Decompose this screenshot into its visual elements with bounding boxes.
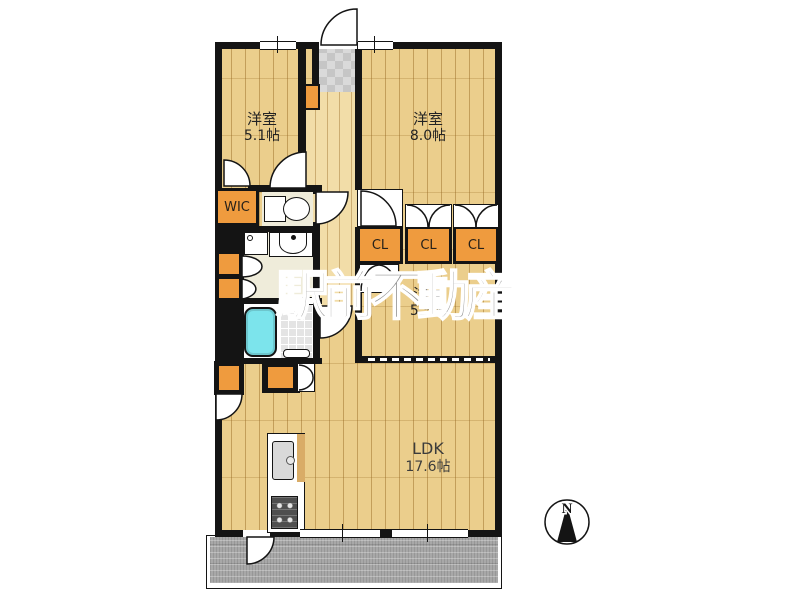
sliding-window-mullion xyxy=(380,529,392,538)
room-label-ldk: LDK 17.6帖 xyxy=(384,440,472,476)
kitchen-counter-edge xyxy=(297,434,305,482)
closet-3-door-band xyxy=(453,204,499,228)
sliding-window-tick-left xyxy=(342,524,343,542)
bedroom51-size: 5.1帖 xyxy=(220,128,304,145)
window-bedroom51 xyxy=(260,41,296,50)
cabinet-4-door-band xyxy=(297,363,315,392)
shower-step xyxy=(283,349,310,358)
storage-cabinet-2 xyxy=(217,277,241,300)
washer-drain xyxy=(247,235,253,241)
closet-3-label: CL xyxy=(468,238,484,253)
storage-cabinet-4 xyxy=(266,365,295,390)
kitchen-stove xyxy=(271,496,298,529)
sliding-window-tick-right xyxy=(427,524,428,542)
compass-needle xyxy=(557,505,577,542)
window-bedroom80 xyxy=(358,41,393,50)
room-label-bedroom80: 洋室 8.0帖 xyxy=(386,111,470,145)
storage-cabinet-1 xyxy=(217,252,241,276)
wic-label: WIC xyxy=(224,200,250,215)
toilet-bowl xyxy=(283,197,310,221)
window-bedroom51-tick xyxy=(277,36,278,53)
walk-in-closet: WIC xyxy=(215,188,259,226)
storage-cabinet-3 xyxy=(217,364,241,392)
closet-1: CL xyxy=(357,226,403,264)
shoe-cabinet xyxy=(304,84,320,110)
ldk-size: 17.6帖 xyxy=(384,458,472,476)
closet-1-label: CL xyxy=(372,238,388,253)
compass-icon: N xyxy=(545,500,589,544)
wall-bedroom51-bottom xyxy=(248,185,322,192)
balcony-door-opening xyxy=(243,530,270,537)
entrance-door-arc xyxy=(321,9,357,45)
genkan-entry-tiles xyxy=(319,45,356,92)
bedroom51-name: 洋室 xyxy=(220,111,304,128)
bedroom80-name: 洋室 xyxy=(386,111,470,128)
closet-3: CL xyxy=(453,226,499,264)
bedroom80-door-zone xyxy=(357,189,403,227)
compass-circle xyxy=(545,500,589,544)
bedroom80-size: 8.0帖 xyxy=(386,128,470,145)
ldk-name: LDK xyxy=(384,440,472,458)
kitchen-faucet xyxy=(286,456,295,465)
closet-2-label: CL xyxy=(420,238,436,253)
wall-bath-left-block xyxy=(218,302,244,364)
balcony xyxy=(210,537,498,583)
wall-hall-toilet-upper xyxy=(313,185,320,194)
agency-watermark: 駅前不動産 xyxy=(276,268,536,330)
room-label-bedroom51: 洋室 5.1帖 xyxy=(220,111,304,145)
wall-hall-bedroom80 xyxy=(355,49,362,190)
entrance-opening xyxy=(319,42,357,49)
compass-n-label: N xyxy=(562,501,573,517)
bathtub xyxy=(244,307,277,357)
closet-2: CL xyxy=(405,226,452,264)
closet-2-door-band xyxy=(405,204,452,228)
window-bedroom80-tick xyxy=(374,36,375,53)
floor-plan: WIC CL CL CL xyxy=(0,0,800,600)
bedroom55-sliding-partition xyxy=(368,358,490,361)
washbasin-faucet xyxy=(291,235,296,240)
